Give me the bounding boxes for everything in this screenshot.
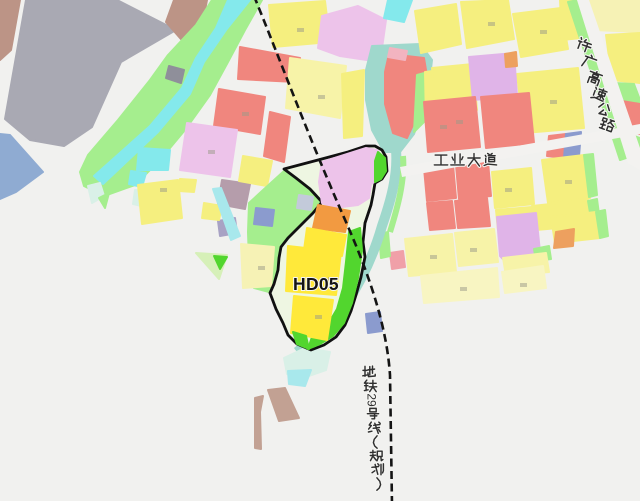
svg-text:29: 29: [365, 393, 379, 407]
svg-text:HD05: HD05: [293, 274, 339, 294]
